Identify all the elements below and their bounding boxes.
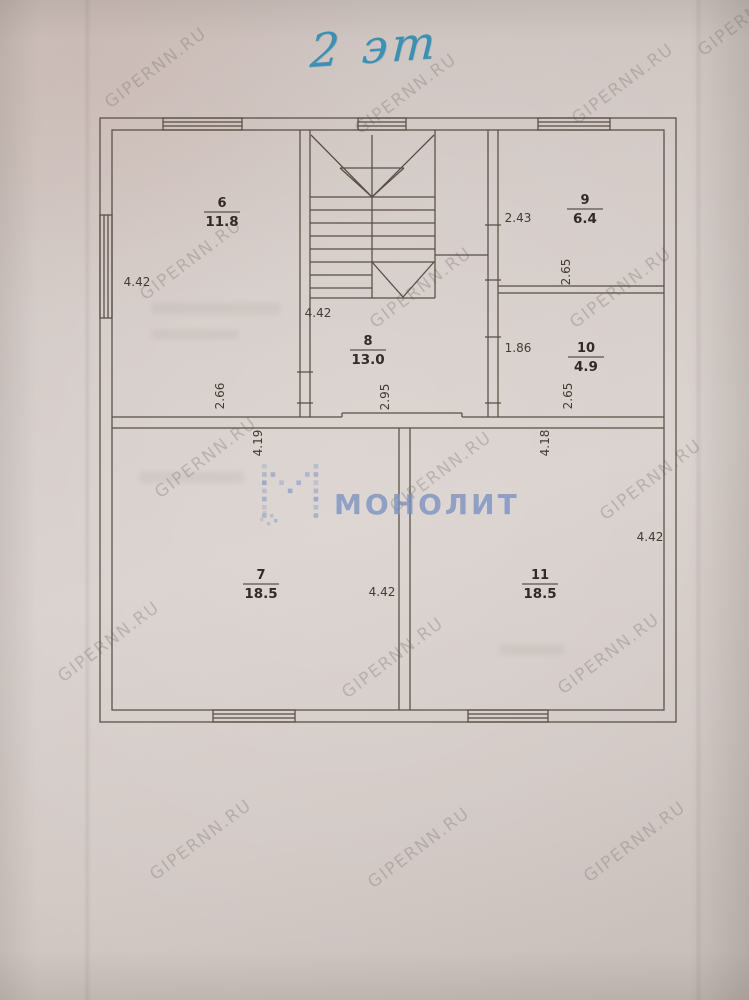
room-6-label: 6 11.8 xyxy=(204,196,240,230)
room-11-label: 11 18.5 xyxy=(522,568,558,602)
dim-room11-right: 4.42 xyxy=(637,530,664,544)
room-11-area: 18.5 xyxy=(523,586,556,602)
room-7-area: 18.5 xyxy=(244,586,277,602)
window xyxy=(213,710,295,722)
dim-room10-left: 1.86 xyxy=(505,341,532,355)
staircase xyxy=(310,130,488,298)
window xyxy=(468,710,548,722)
wall-room9-room10 xyxy=(498,286,664,293)
dim-hall-bottom: 2.95 xyxy=(378,384,392,411)
dim-room7-top: 4.19 xyxy=(251,430,265,457)
dim-room9-left: 2.43 xyxy=(505,211,532,225)
dim-room9-right: 2.65 xyxy=(559,259,573,286)
room-8-label: 8 13.0 xyxy=(350,334,386,368)
window xyxy=(163,118,242,130)
room-7-label: 7 18.5 xyxy=(243,568,279,602)
dimension-labels: 4.42 2.66 4.42 2.95 2.43 2.65 1.86 2.65 … xyxy=(124,211,664,599)
room-11-number: 11 xyxy=(531,568,549,583)
dim-room11-top: 4.18 xyxy=(538,430,552,457)
room-10-area: 4.9 xyxy=(574,359,598,375)
room-labels: 6 11.8 8 13.0 9 6.4 10 4.9 7 xyxy=(204,193,604,602)
dim-room7-mid: 4.42 xyxy=(369,585,396,599)
scanned-floor-plan-photo: GIPERNN.RUGIPERNN.RUGIPERNN.RUGIPERNN.RU… xyxy=(0,0,749,1000)
room-9-area: 6.4 xyxy=(573,211,597,227)
room-6-area: 11.8 xyxy=(205,214,238,230)
dim-hall-top: 4.42 xyxy=(305,306,332,320)
wall-room6-hall xyxy=(297,130,313,417)
dim-room10-right: 2.65 xyxy=(561,383,575,410)
room-8-number: 8 xyxy=(363,334,372,349)
room-6-number: 6 xyxy=(217,196,226,211)
room-7-number: 7 xyxy=(256,568,265,583)
window xyxy=(358,118,406,130)
wall-middle xyxy=(112,413,664,428)
window xyxy=(538,118,610,130)
floor-plan-svg: 6 11.8 8 13.0 9 6.4 10 4.9 7 xyxy=(0,0,749,1000)
wall-room7-room11 xyxy=(399,428,410,710)
window xyxy=(100,215,112,318)
room-10-number: 10 xyxy=(577,341,595,356)
room-8-area: 13.0 xyxy=(351,352,384,368)
room-9-label: 9 6.4 xyxy=(567,193,603,227)
dim-room6-bottom: 2.66 xyxy=(213,383,227,410)
wall-hall-room9-10 xyxy=(485,130,501,417)
room-10-label: 10 4.9 xyxy=(568,341,604,375)
room-9-number: 9 xyxy=(580,193,589,208)
dim-room6-left: 4.42 xyxy=(124,275,151,289)
